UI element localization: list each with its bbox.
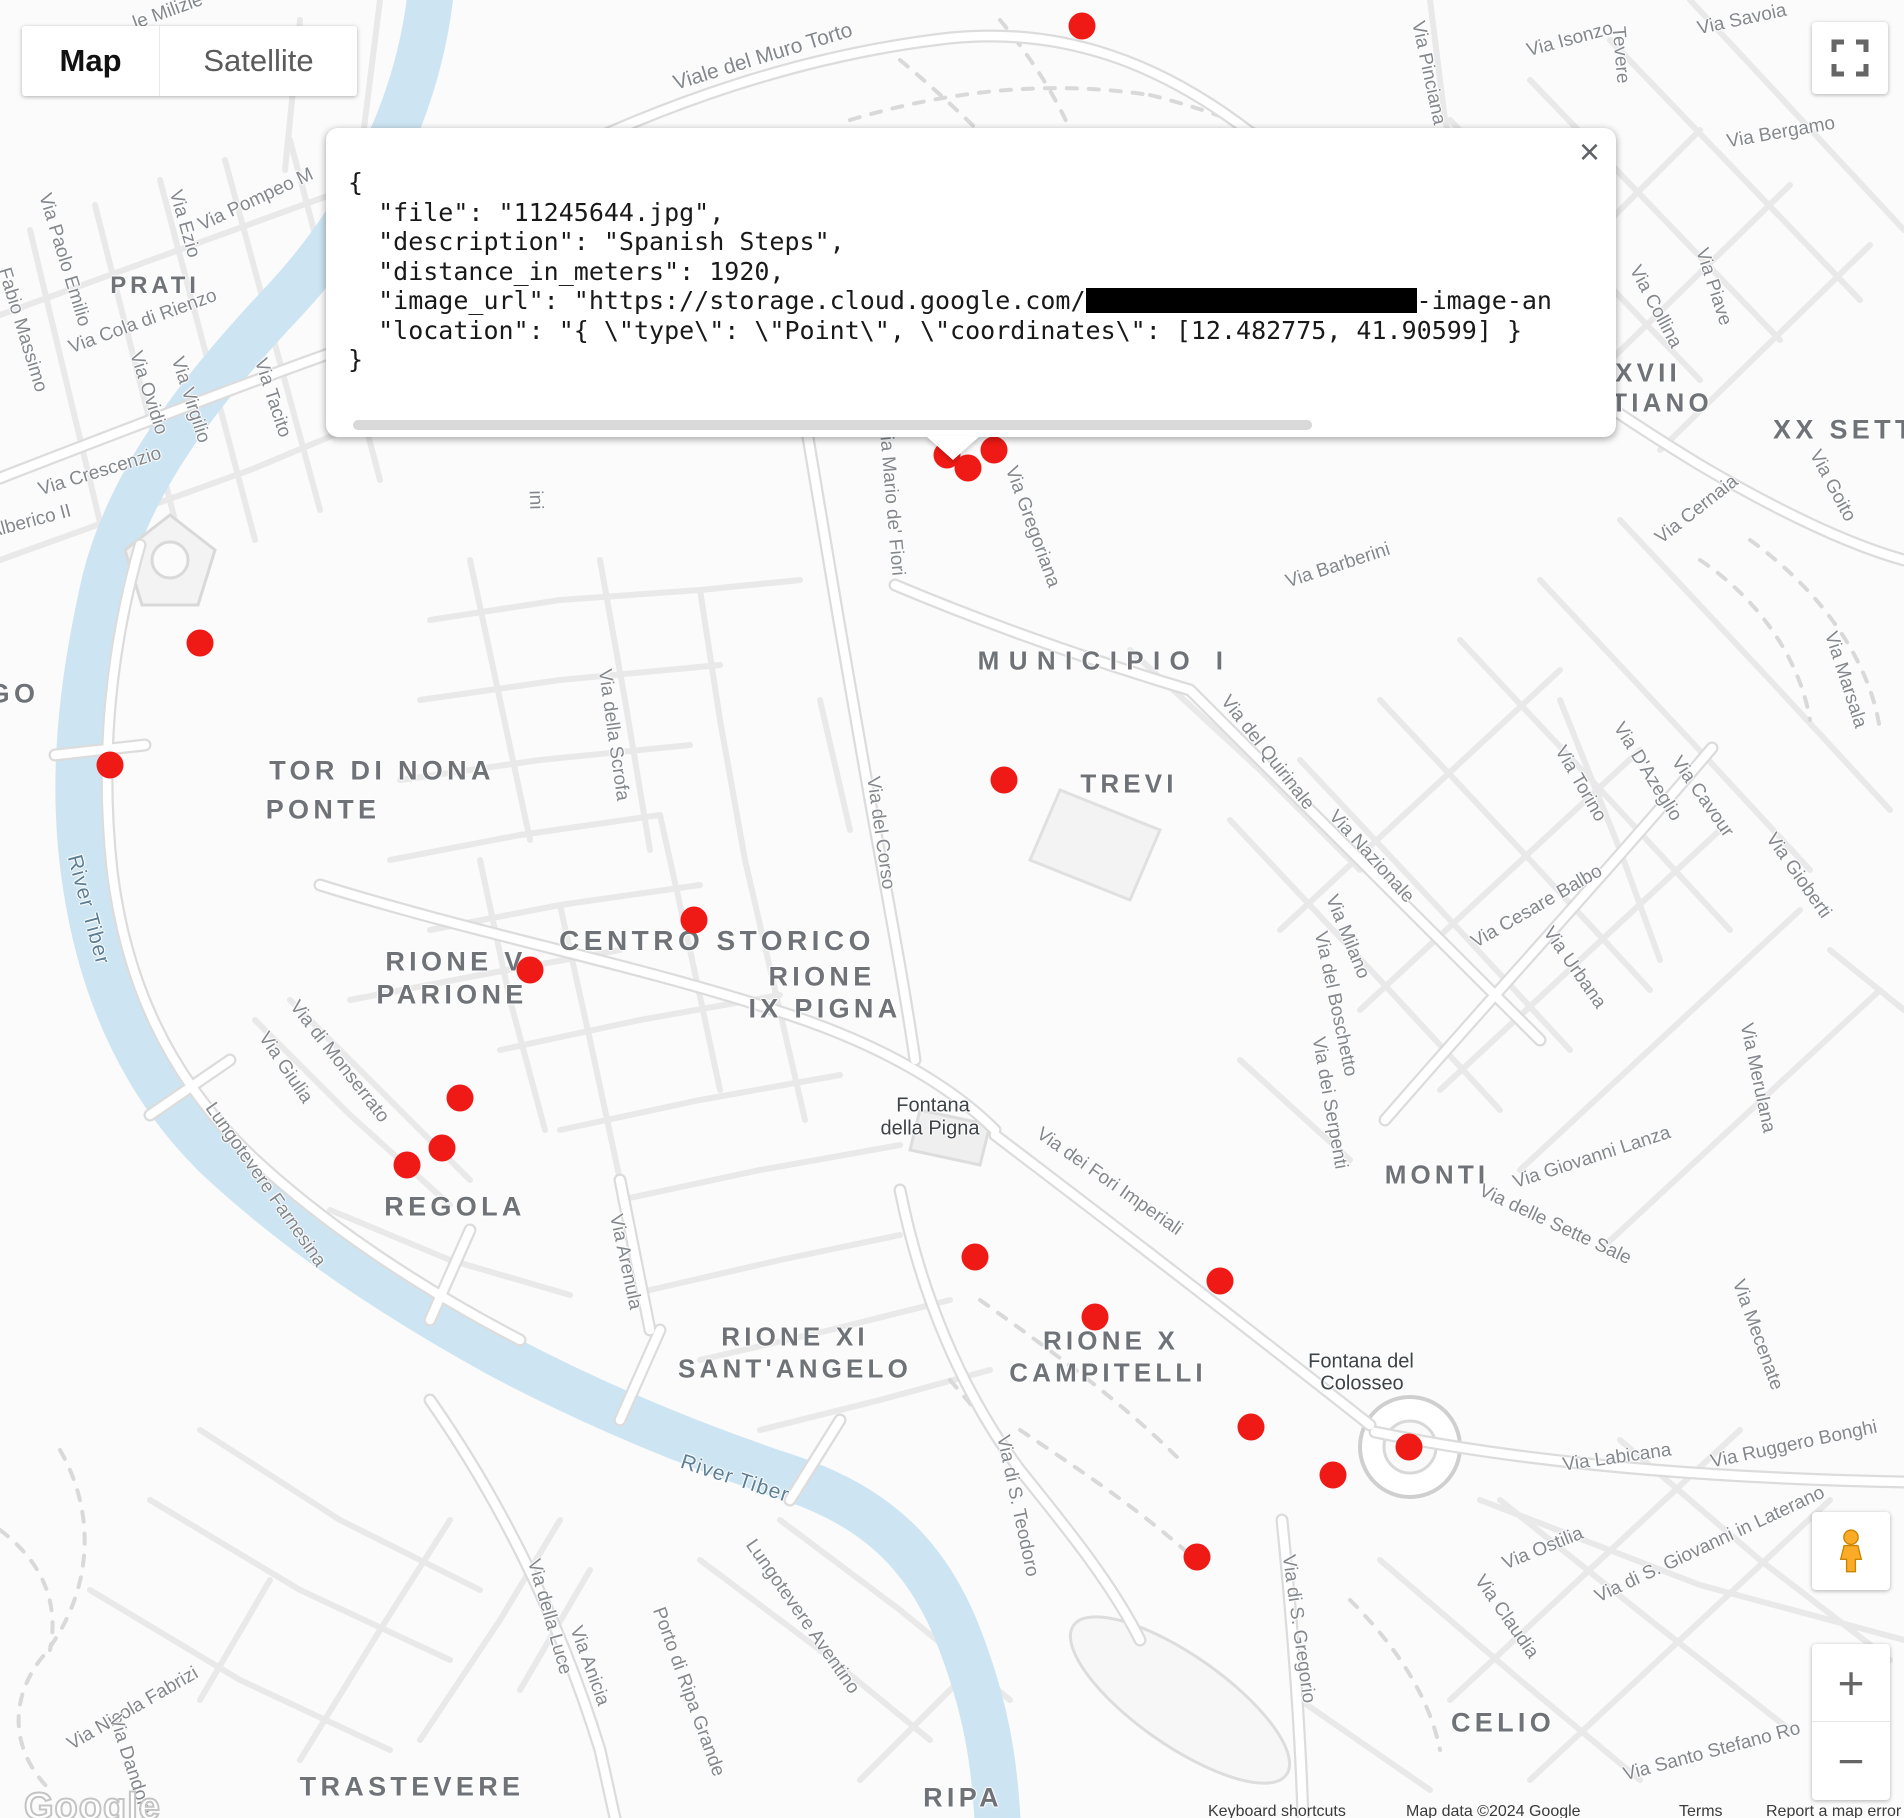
poi-label: Fontana: [896, 1095, 969, 1118]
map-marker[interactable]: [1396, 1434, 1423, 1461]
map-marker[interactable]: [429, 1135, 456, 1162]
area-label: CAMPITELLI: [1009, 1358, 1207, 1389]
fullscreen-button[interactable]: [1812, 22, 1888, 94]
map-marker[interactable]: [1184, 1544, 1211, 1571]
area-label: SANT'ANGELO: [678, 1354, 912, 1385]
google-logo[interactable]: Google: [24, 1786, 161, 1818]
map-type-control: Map Satellite: [22, 26, 357, 96]
map-marker[interactable]: [1320, 1462, 1347, 1489]
map-marker[interactable]: [1069, 13, 1096, 40]
redaction-bar: [1086, 288, 1417, 313]
code-line: "description": "Spanish Steps",: [348, 227, 1606, 257]
area-label: GO: [0, 679, 39, 710]
code-line: "image_url": "https://storage.cloud.goog…: [348, 286, 1606, 316]
report-map-error-link[interactable]: Report a map error: [1766, 1803, 1901, 1818]
area-label: RIONE: [768, 962, 875, 993]
street-label: ini: [524, 490, 547, 510]
area-label: TIANO: [1611, 388, 1713, 419]
map-marker[interactable]: [1238, 1414, 1265, 1441]
code-line: "file": "11245644.jpg",: [348, 198, 1606, 228]
map-marker[interactable]: [394, 1152, 421, 1179]
map-marker[interactable]: [1082, 1304, 1109, 1331]
area-label: MONTI: [1385, 1160, 1490, 1191]
map-marker[interactable]: [447, 1085, 474, 1112]
area-label: RIONE V: [385, 947, 526, 978]
area-label: RIPA: [923, 1783, 1003, 1814]
code-line: }: [348, 345, 1606, 375]
area-label: REGOLA: [384, 1192, 525, 1223]
zoom-control: + −: [1812, 1644, 1890, 1800]
area-label: IX PIGNA: [748, 994, 901, 1025]
area-label: CENTRO STORICO: [559, 925, 875, 957]
map-marker[interactable]: [681, 907, 708, 934]
area-label: PRATI: [110, 272, 199, 300]
map-marker[interactable]: [97, 752, 124, 779]
map-marker[interactable]: [962, 1244, 989, 1271]
map-marker[interactable]: [991, 767, 1018, 794]
zoom-out-button[interactable]: −: [1812, 1722, 1890, 1800]
horizontal-scrollbar[interactable]: [353, 420, 1312, 430]
map-canvas[interactable]: River TiberRiver Tiber le MilizieViale d…: [0, 0, 1904, 1818]
area-label: TREVI: [1080, 769, 1177, 800]
fullscreen-icon: [1831, 39, 1869, 77]
map-button[interactable]: Map: [22, 26, 160, 96]
map-marker[interactable]: [981, 437, 1008, 464]
info-window: × { "file": "11245644.jpg", "description…: [326, 128, 1616, 437]
area-label: XVII: [1615, 358, 1681, 389]
map-marker[interactable]: [517, 957, 544, 984]
code-line: "location": "{ \"type\": \"Point\", \"co…: [348, 316, 1606, 346]
area-label: RIONE XI: [721, 1322, 868, 1353]
info-window-tail: [926, 436, 980, 460]
area-label: PARIONE: [376, 980, 527, 1011]
area-label: TRASTEVERE: [300, 1772, 525, 1803]
code-line: {: [348, 168, 1606, 198]
map-marker[interactable]: [1207, 1268, 1234, 1295]
json-code-block: { "file": "11245644.jpg", "description":…: [348, 168, 1606, 375]
satellite-button[interactable]: Satellite: [160, 26, 357, 96]
area-label: TOR DI NONA: [269, 756, 495, 787]
area-label: PONTE: [266, 795, 381, 826]
map-marker[interactable]: [187, 630, 214, 657]
keyboard-shortcuts-link[interactable]: Keyboard shortcuts: [1208, 1803, 1346, 1818]
poi-label: Fontana del: [1308, 1351, 1414, 1374]
zoom-in-button[interactable]: +: [1812, 1644, 1890, 1722]
terms-link[interactable]: Terms: [1679, 1803, 1723, 1818]
pegman-icon: [1831, 1529, 1871, 1573]
map-data-copyright: Map data ©2024 Google: [1406, 1803, 1581, 1818]
area-label: MUNICIPIO I: [978, 646, 1233, 677]
area-label: CELIO: [1451, 1708, 1555, 1739]
poi-label: Colosseo: [1320, 1373, 1403, 1396]
code-line: "distance_in_meters": 1920,: [348, 257, 1606, 287]
area-label: XX SETTEMBRE: [1773, 415, 1904, 446]
poi-label: della Pigna: [881, 1118, 980, 1141]
pegman-button[interactable]: [1812, 1512, 1890, 1590]
area-label: RIONE X: [1043, 1326, 1179, 1357]
